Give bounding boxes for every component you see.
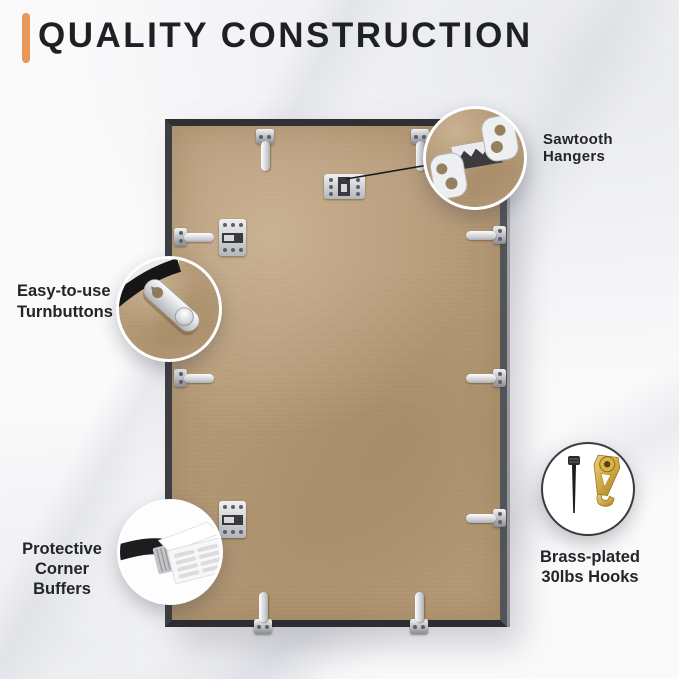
turnbutton-right-lower [466,509,506,527]
corner-buffers-label-line1: Protective [6,539,118,559]
page-title: QUALITY CONSTRUCTION [38,16,533,56]
nail-icon [568,456,580,513]
turnbutton-arm [466,231,496,240]
turnbutton-arm [261,141,270,171]
corner-buffers-label-line2: Corner Buffers [6,559,118,599]
hooks-label-line2: 30lbs Hooks [531,567,649,587]
turnbutton-top-left [256,129,274,171]
turnbutton-arm [184,374,214,383]
turnbutton-left-upper [174,228,214,246]
sawtooth-hangers-callout [423,106,527,210]
turnbuttons-label-line2: Turnbuttons [17,302,113,323]
brass-hook-and-nail-icon [543,444,633,534]
sawtooth-hanger-left-lower [219,501,246,538]
turnbutton-right-upper [466,226,506,244]
hooks-label: Brass-plated 30lbs Hooks [531,547,649,587]
sawtooth-hangers-label: Sawtooth Hangers [543,131,679,165]
hooks-label-line1: Brass-plated [531,547,649,567]
corner-buffers-callout [117,499,223,605]
turnbutton-arm [184,233,214,242]
corner-buffer-icon [120,502,220,602]
accent-bar [22,13,30,63]
turnbutton-bottom-left [254,592,272,634]
product-infographic: QUALITY CONSTRUCTION [0,0,679,679]
sawtooth-hanger-left-upper [219,219,246,256]
corner-buffers-label: Protective Corner Buffers [6,539,118,599]
turnbutton-left-middle [174,369,214,387]
turnbutton-arm [259,592,268,622]
turnbutton-icon [119,259,219,359]
turnbutton-right-middle [466,369,506,387]
turnbuttons-label: Easy-to-use Turnbuttons [17,281,113,323]
brass-hook-icon [589,455,621,508]
sawtooth-hanger-icon [426,109,524,207]
turnbutton-bottom-right [410,592,428,634]
turnbuttons-callout [116,256,222,362]
turnbutton-arm [466,374,496,383]
turnbutton-arm [466,514,496,523]
turnbuttons-label-line1: Easy-to-use [17,281,113,302]
hooks-callout [541,442,635,536]
turnbutton-arm [415,592,424,622]
sawtooth-hanger-top-center [324,174,365,199]
